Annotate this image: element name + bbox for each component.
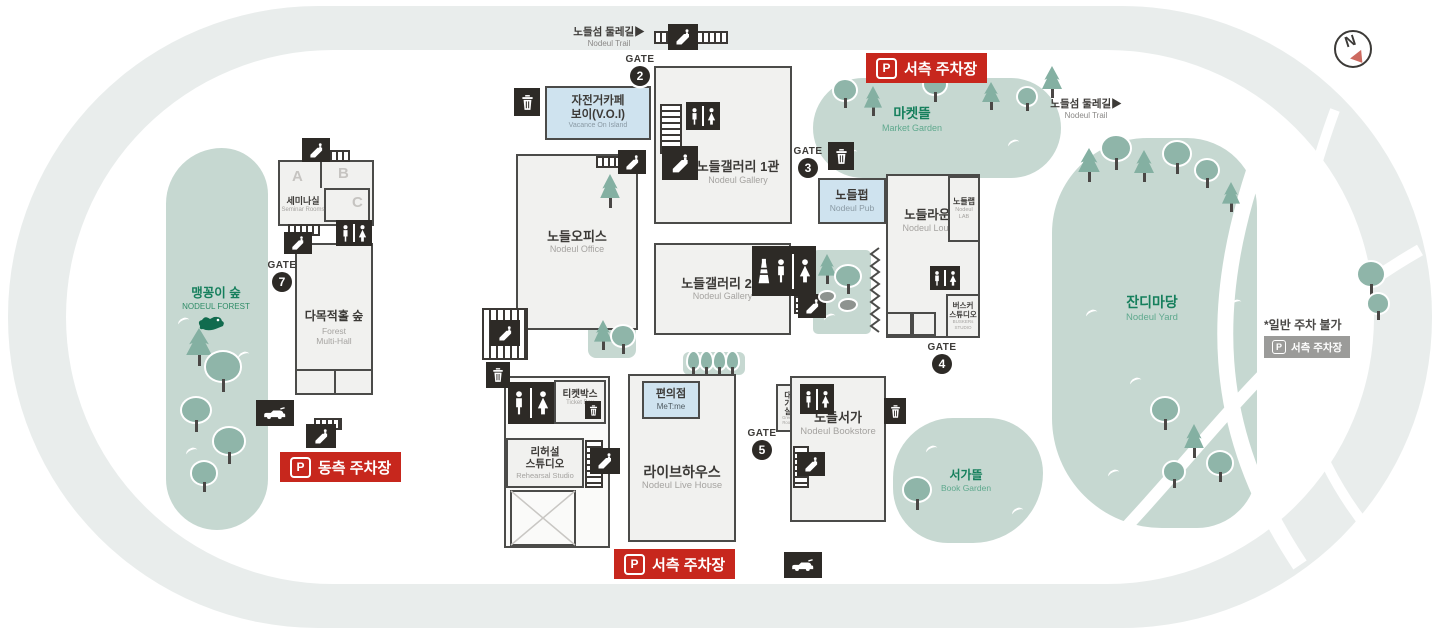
- tree-icon: [834, 80, 856, 108]
- tree-icon: [714, 352, 725, 375]
- restroom-icon: [686, 102, 720, 130]
- tree-icon: [1196, 160, 1218, 188]
- tree-icon: [192, 462, 216, 492]
- tree-icon: [1184, 424, 1204, 458]
- badge-east-parking: P 동측 주차장: [280, 452, 401, 482]
- restroom-icon: [800, 384, 834, 414]
- trash-icon: [585, 401, 601, 419]
- gate-5: GATE5: [742, 428, 782, 460]
- trash-icon: [828, 142, 854, 170]
- nodeul-island-facility-map: 맹꽁이 숲 NODEUL FOREST 마켓뜰 Market Garden 잔디…: [0, 0, 1440, 636]
- tree-icon: [904, 478, 930, 510]
- escalator-icon: [662, 146, 698, 180]
- tree-icon: [1152, 398, 1178, 430]
- tree-icon: [727, 352, 738, 375]
- escalator-icon: [306, 424, 336, 448]
- parking-icon: P: [624, 554, 645, 575]
- crossed-room: [510, 490, 576, 546]
- badge-west-parking-gray: P 서측 주차장: [1264, 336, 1350, 358]
- trail-label-top: 노들섬 둘레길▶ Nodeul Trail: [566, 24, 652, 48]
- tree-icon: [206, 352, 240, 392]
- frog-icon: [196, 314, 226, 334]
- restroom-icon: [508, 382, 554, 424]
- badge-west-parking-bottom: P 서측 주차장: [614, 549, 735, 579]
- trail-label-right: 노들섬 둘레길▶ Nodeul Trail: [1040, 96, 1132, 120]
- tree-icon: [836, 266, 860, 294]
- tree-icon: [182, 398, 210, 432]
- tree-icon: [1078, 148, 1100, 182]
- car-icon: [784, 552, 822, 578]
- escalator-icon: [590, 448, 620, 474]
- tree-icon: [701, 352, 712, 375]
- parking-icon: P: [1272, 340, 1286, 354]
- badge-west-parking-top: P 서측 주차장: [866, 53, 987, 83]
- nursing-restroom-icon: [752, 246, 816, 296]
- tree-icon: [612, 326, 634, 354]
- escalator-icon: [284, 232, 312, 254]
- tree-icon: [688, 352, 699, 375]
- escalator-icon: [302, 138, 330, 162]
- tree-icon: [1134, 150, 1154, 182]
- trash-icon: [514, 88, 540, 116]
- book-garden-label: 서가뜰 Book Garden: [928, 468, 1004, 494]
- trash-icon: [486, 362, 510, 388]
- tree-icon: [1018, 88, 1036, 112]
- compass-icon: N: [1334, 30, 1372, 68]
- tree-icon: [818, 254, 836, 284]
- zigzag-wall: [869, 246, 881, 334]
- tree-icon: [1222, 182, 1240, 212]
- tree-icon: [1368, 294, 1388, 320]
- tree-icon: [214, 428, 244, 464]
- restroom-icon: [930, 266, 960, 290]
- parking-icon: P: [290, 457, 311, 478]
- gate-7: GATE7: [262, 260, 302, 292]
- gate-2: GATE2: [620, 54, 660, 86]
- escalator-icon: [797, 452, 825, 476]
- restroom-icon: [336, 220, 372, 246]
- tree-icon: [1208, 452, 1232, 482]
- no-parking-note: *일반 주차 불가: [1264, 316, 1342, 333]
- yard-label: 잔디마당 Nodeul Yard: [1102, 294, 1202, 323]
- tree-icon: [1164, 462, 1184, 488]
- tree-icon: [1102, 136, 1130, 170]
- trash-icon: [884, 398, 906, 424]
- forest-label: 맹꽁이 숲 NODEUL FOREST: [168, 286, 264, 312]
- parking-icon: P: [876, 58, 897, 79]
- escalator-icon: [618, 150, 646, 174]
- tree-icon: [1164, 142, 1190, 174]
- tree-icon: [1358, 262, 1384, 296]
- gate-4: GATE4: [922, 342, 962, 374]
- gate-3: GATE3: [788, 146, 828, 178]
- tree-icon: [600, 174, 620, 208]
- tree-icon: [982, 82, 1000, 110]
- tree-icon: [1042, 66, 1062, 98]
- escalator-icon: [668, 24, 698, 50]
- escalator-icon: [490, 320, 520, 346]
- tree-icon: [864, 86, 882, 116]
- tree-icon: [594, 320, 612, 350]
- car-icon: [256, 400, 294, 426]
